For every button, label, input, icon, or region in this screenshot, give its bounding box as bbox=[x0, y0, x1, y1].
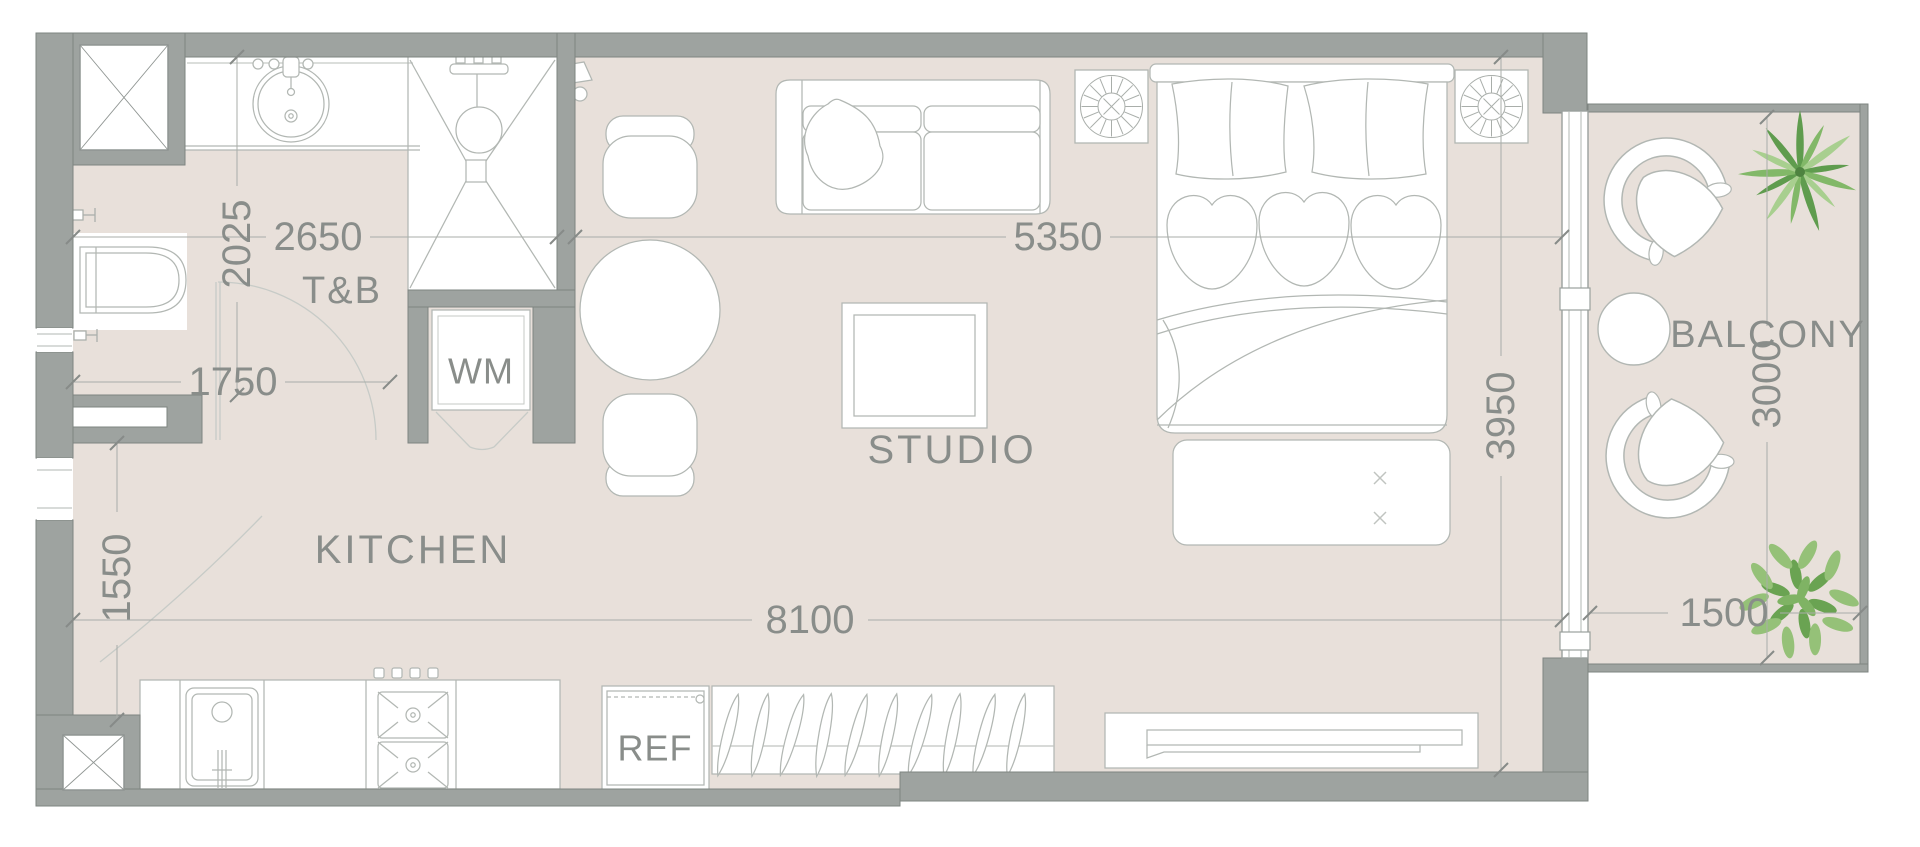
wall-wm-left bbox=[408, 307, 428, 443]
wall-bottom-right bbox=[900, 772, 1588, 801]
stool-top bbox=[603, 116, 697, 218]
wardrobe bbox=[712, 686, 1054, 777]
wall-bottom-left bbox=[36, 789, 900, 806]
refrigerator-label: REF bbox=[618, 728, 693, 769]
washing-machine-label: WM bbox=[448, 351, 514, 392]
dim-balcony-depth-value: 3000 bbox=[1745, 340, 1789, 429]
dim-unit-length-value: 8100 bbox=[766, 598, 855, 642]
wall-top bbox=[36, 33, 1587, 57]
headboard bbox=[1150, 64, 1454, 82]
shaft-box-top-left bbox=[80, 45, 168, 150]
balcony-rail-right bbox=[1860, 104, 1868, 672]
dim-studio-depth-value: 3950 bbox=[1479, 372, 1523, 461]
bed bbox=[1150, 64, 1454, 433]
balcony-glazing bbox=[1560, 111, 1590, 658]
ceiling-fan-icon-right bbox=[1455, 70, 1528, 143]
shower-drain-icon bbox=[466, 160, 486, 182]
wall-wm-right bbox=[533, 307, 575, 443]
round-table bbox=[580, 240, 720, 380]
dim-bathroom-width-value: 2650 bbox=[274, 215, 363, 259]
shaft-box-bottom-left bbox=[63, 735, 124, 790]
glazing-mullion-1 bbox=[1560, 288, 1590, 310]
shower-head-icon bbox=[456, 107, 502, 153]
wall-left-upper bbox=[36, 33, 73, 328]
dim-studio-width-value: 5350 bbox=[1014, 215, 1103, 259]
floor-plan-drawing: T&B KITCHEN STUDIO BALCONY WM REF 2650 5… bbox=[0, 0, 1920, 847]
dim-bathroom-depth-value: 2025 bbox=[215, 200, 259, 289]
left-wall-opening-1 bbox=[37, 328, 72, 352]
wall-bottom-right-pier bbox=[1543, 658, 1588, 772]
faucet-icon bbox=[283, 57, 299, 77]
bed-bench bbox=[1173, 440, 1450, 545]
shower-mixer-bar bbox=[450, 64, 508, 74]
wall-top-right-step bbox=[1543, 33, 1587, 113]
wall-left-middle bbox=[36, 352, 73, 458]
kitchen-label: KITCHEN bbox=[315, 528, 512, 572]
wall-wm-top bbox=[408, 290, 575, 307]
sofa bbox=[776, 80, 1050, 214]
entry-niche-slot bbox=[73, 407, 167, 427]
stool-bottom bbox=[603, 394, 697, 496]
glazing-mullion-2 bbox=[1560, 632, 1590, 650]
balcony-rail-bottom bbox=[1588, 664, 1868, 672]
studio-label: STUDIO bbox=[867, 428, 1036, 472]
dim-balcony-width-value: 1500 bbox=[1680, 591, 1769, 635]
bathroom-label: T&B bbox=[302, 270, 382, 312]
coffee-table bbox=[842, 303, 987, 428]
kitchen-sink-icon bbox=[186, 688, 258, 788]
dim-kitchen-depth-value: 1550 bbox=[95, 534, 139, 623]
balcony-rail-top bbox=[1588, 104, 1868, 112]
tv-console bbox=[1105, 713, 1478, 768]
floor-plan-page: T&B KITCHEN STUDIO BALCONY WM REF 2650 5… bbox=[0, 0, 1920, 847]
ceiling-fan-icon-left bbox=[1075, 70, 1148, 143]
balcony-side-table bbox=[1598, 293, 1670, 365]
left-wall-opening-2 bbox=[37, 458, 72, 520]
dim-hallway-width-value: 1750 bbox=[189, 360, 278, 404]
toilet-icon bbox=[80, 247, 186, 313]
